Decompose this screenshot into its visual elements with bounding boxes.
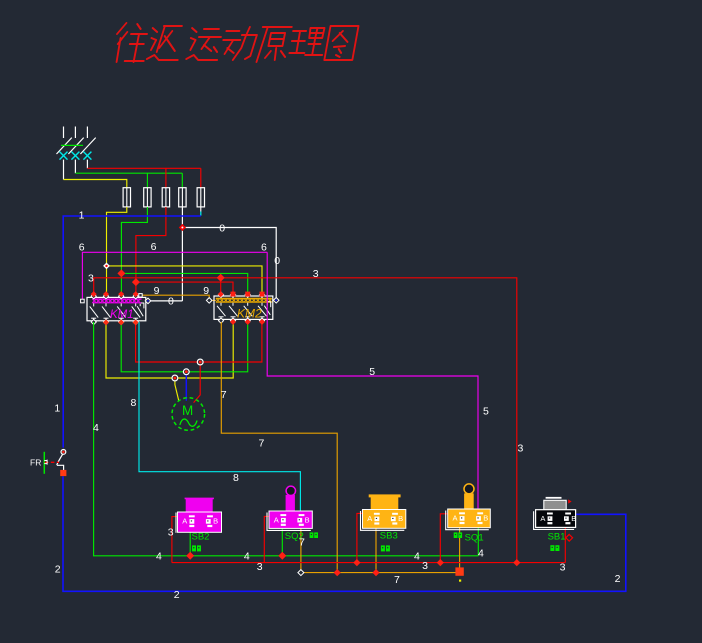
svg-text:SQ1: SQ1 — [465, 532, 484, 543]
svg-text:B: B — [483, 514, 488, 523]
svg-text:A: A — [453, 514, 458, 523]
svg-text:3: 3 — [88, 272, 94, 284]
svg-text:8: 8 — [233, 472, 239, 484]
svg-text:7: 7 — [259, 438, 265, 450]
svg-text:SB2: SB2 — [192, 532, 210, 543]
svg-text:B: B — [571, 514, 576, 523]
svg-text:0: 0 — [274, 255, 280, 267]
svg-text:0: 0 — [168, 295, 174, 307]
svg-text:5: 5 — [369, 366, 375, 378]
svg-text:B: B — [213, 517, 218, 526]
svg-text:SB3: SB3 — [380, 531, 398, 542]
svg-text:7: 7 — [221, 389, 227, 401]
svg-text:1: 1 — [54, 403, 60, 415]
svg-text:4: 4 — [156, 550, 162, 562]
svg-text:2: 2 — [174, 589, 180, 601]
svg-text:A: A — [274, 516, 279, 525]
svg-text:3: 3 — [313, 268, 319, 280]
svg-text:7: 7 — [394, 574, 400, 586]
svg-text:B: B — [305, 516, 310, 525]
svg-text:KM1: KM1 — [110, 309, 134, 321]
svg-text:4: 4 — [414, 550, 420, 562]
svg-text:4: 4 — [244, 550, 250, 562]
svg-text:6: 6 — [261, 242, 267, 254]
svg-text:A: A — [540, 514, 545, 523]
svg-text:0: 0 — [219, 222, 225, 234]
svg-text:3: 3 — [422, 560, 428, 572]
svg-text:3: 3 — [518, 442, 524, 454]
svg-text:KM2: KM2 — [237, 307, 262, 321]
svg-text:A: A — [182, 517, 187, 526]
svg-text:4: 4 — [93, 422, 99, 434]
svg-text:3: 3 — [168, 527, 174, 539]
svg-text:9: 9 — [154, 285, 160, 297]
svg-text:9: 9 — [203, 285, 209, 297]
svg-text:FR: FR — [30, 458, 41, 468]
svg-text:B: B — [398, 514, 403, 523]
svg-text:SB1: SB1 — [548, 532, 566, 543]
svg-text:3: 3 — [257, 561, 263, 573]
svg-text:M: M — [182, 403, 193, 418]
svg-text:2: 2 — [55, 564, 61, 576]
svg-text:2: 2 — [615, 573, 621, 585]
svg-text:3: 3 — [560, 562, 566, 574]
svg-text:6: 6 — [151, 241, 157, 253]
svg-text:6: 6 — [79, 241, 85, 253]
svg-text:5: 5 — [483, 405, 489, 417]
svg-text:4: 4 — [478, 547, 484, 559]
svg-text:1: 1 — [79, 210, 85, 222]
svg-text:A: A — [367, 514, 372, 523]
svg-text:7: 7 — [299, 536, 305, 548]
svg-text:8: 8 — [131, 397, 137, 409]
